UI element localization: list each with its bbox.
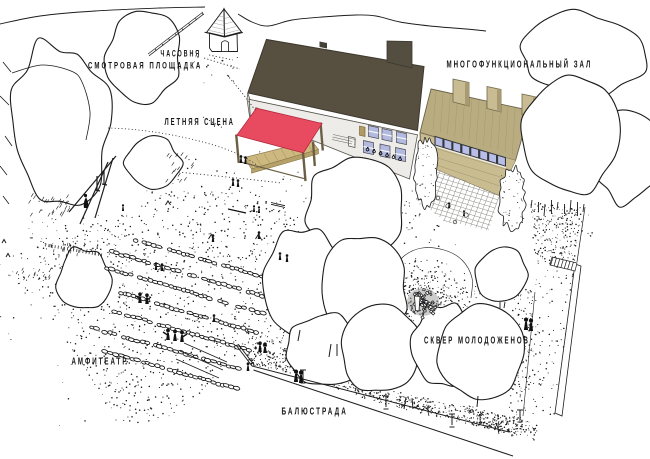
svg-text:МНОГОФУНКЦИОНАЛЬНЫЙ ЗАЛ: МНОГОФУНКЦИОНАЛЬНЫЙ ЗАЛ bbox=[447, 57, 593, 70]
svg-text:ЛЕТНЯЯ СЦЕНА: ЛЕТНЯЯ СЦЕНА bbox=[165, 116, 235, 127]
svg-text:АМФИТЕАТР: АМФИТЕАТР bbox=[72, 355, 129, 367]
svg-text:СМОТРОВАЯ ПЛОЩАДКА: СМОТРОВАЯ ПЛОЩАДКА bbox=[88, 60, 202, 71]
svg-text:СКВЕР МОЛОДОЖЕНОВ: СКВЕР МОЛОДОЖЕНОВ bbox=[424, 335, 530, 346]
svg-text:БАЛЮСТРАДА: БАЛЮСТРАДА bbox=[282, 405, 348, 417]
svg-text:ЧАСОВНЯ: ЧАСОВНЯ bbox=[161, 48, 202, 59]
